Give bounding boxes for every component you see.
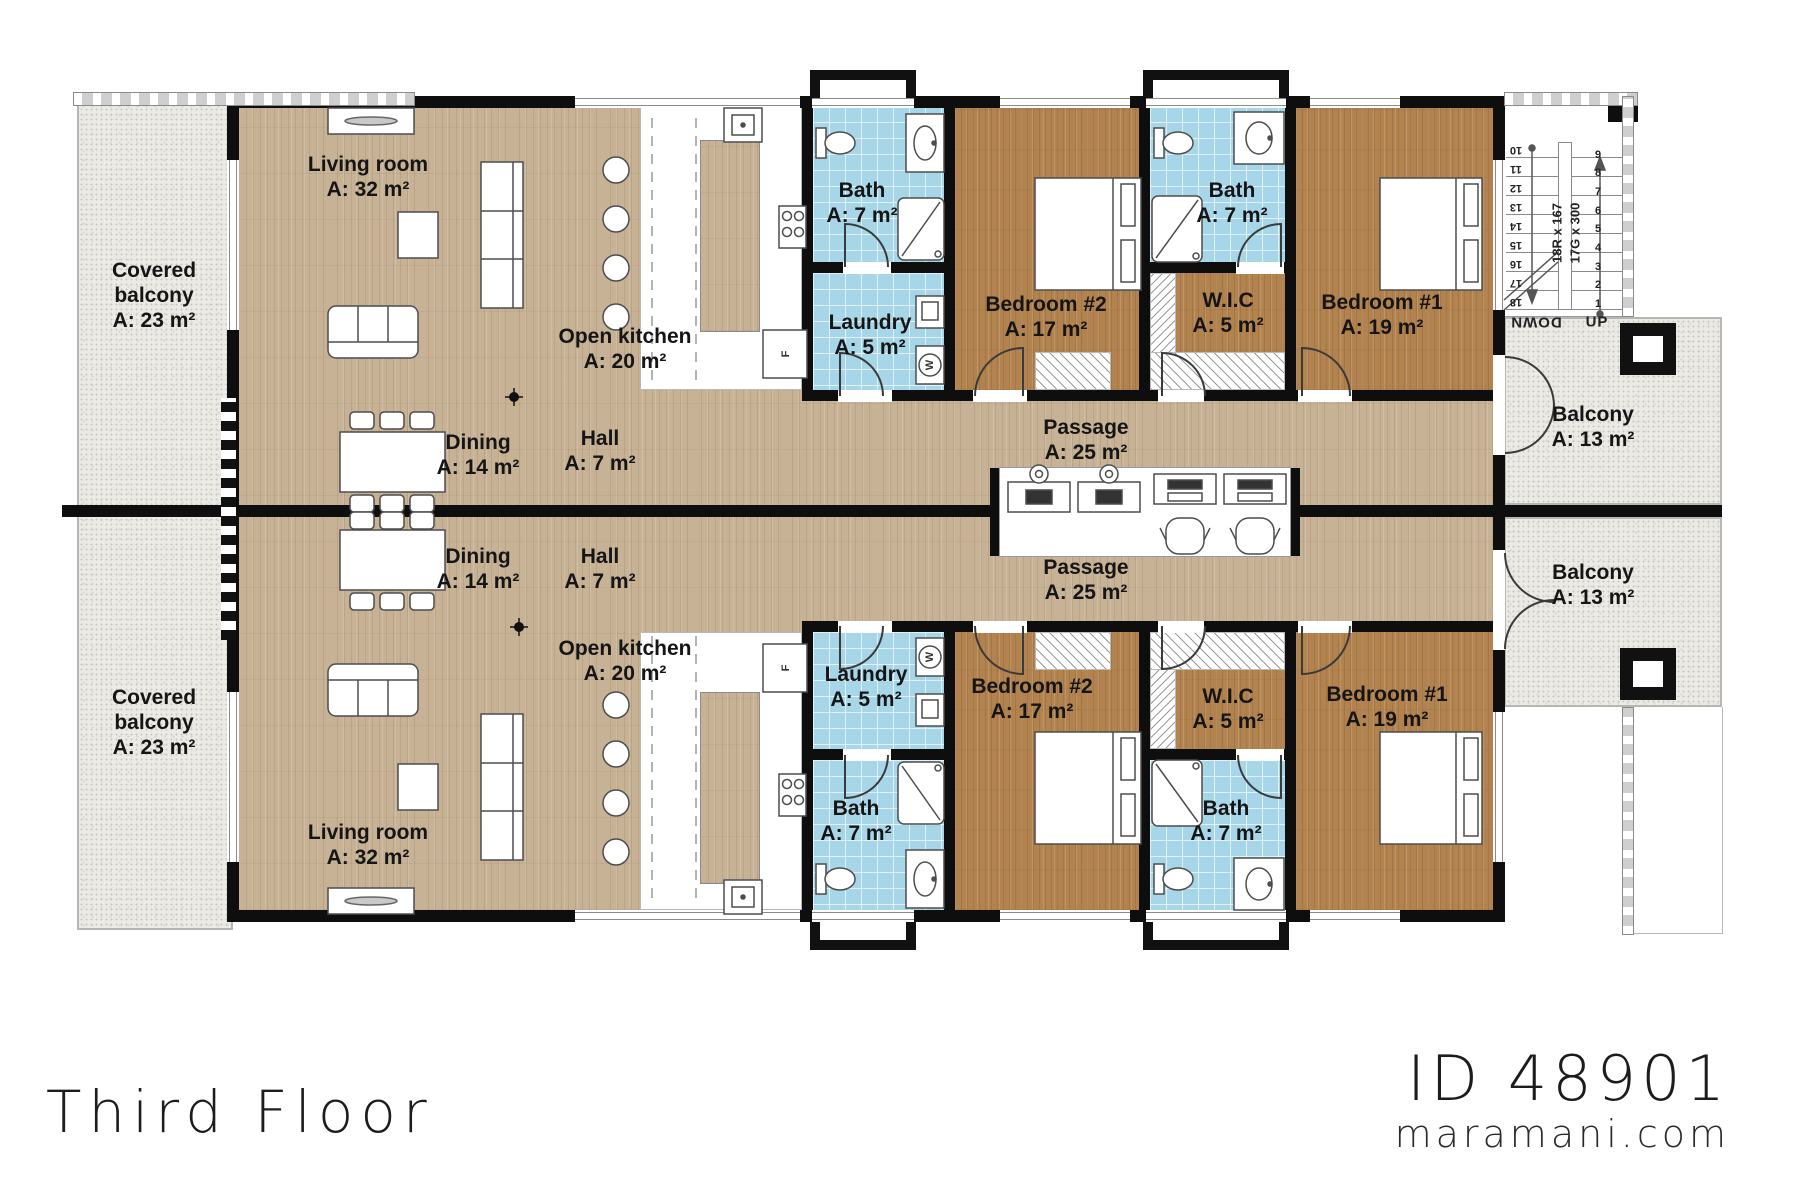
office-chair (1160, 518, 1210, 554)
bed (1380, 178, 1482, 290)
room-label-dining-bottom: DiningA: 14 m² (437, 545, 520, 595)
room-area: A: 5 m² (825, 688, 908, 713)
sofa (328, 664, 418, 716)
room-area: A: 5 m² (829, 336, 912, 361)
room-area: A: 19 m² (1326, 708, 1447, 733)
room-area: A: 13 m² (1552, 586, 1635, 611)
bed (1035, 178, 1141, 290)
room-area: A: 23 m² (95, 308, 213, 333)
washer-label: W (924, 360, 936, 370)
room-name: Covered balcony (95, 259, 213, 309)
room-area: A: 17 m² (985, 318, 1106, 343)
room-area: A: 7 m² (1190, 822, 1261, 847)
furniture-layer (0, 0, 1800, 1200)
fireplace (328, 888, 414, 914)
sink-vanity (906, 114, 944, 172)
room-name: Dining (437, 545, 520, 570)
room-name: Open kitchen (558, 637, 691, 662)
stair-step-number: 9 (1595, 149, 1601, 161)
room-label-bedroom1-top: Bedroom #1A: 19 m² (1321, 291, 1442, 341)
survey-marker (505, 388, 528, 636)
stair-step-number: 18 (1510, 296, 1522, 308)
room-area: A: 23 m² (95, 735, 213, 760)
room-name: Living room (308, 153, 428, 178)
dining-table (340, 512, 445, 610)
room-name: Hall (564, 427, 635, 452)
room-label-balcony-top: BalconyA: 13 m² (1552, 403, 1635, 453)
room-area: A: 17 m² (971, 700, 1092, 725)
room-label-bath1-bottom: BathA: 7 m² (820, 797, 891, 847)
bed (1035, 732, 1141, 844)
room-area: A: 7 m² (564, 452, 635, 477)
toilet (816, 128, 855, 158)
stair-going-dim: 17G x 300 (1566, 203, 1584, 264)
stove (779, 206, 806, 248)
stair-step-number: 10 (1510, 144, 1522, 156)
fridge-label: F (780, 351, 792, 358)
stair-step-number: 2 (1595, 279, 1601, 291)
room-area: A: 25 m² (1043, 441, 1128, 466)
room-label-living-room-bottom: Living roomA: 32 m² (308, 821, 428, 871)
room-label-hall-bottom: HallA: 7 m² (564, 545, 635, 595)
room-label-bath2-bottom: BathA: 7 m² (1190, 797, 1261, 847)
dining-table (340, 412, 445, 512)
room-label-covered-balcony-top: Covered balconyA: 23 m² (95, 259, 213, 333)
room-name: Passage (1043, 416, 1128, 441)
room-label-passage-top: PassageA: 25 m² (1043, 416, 1128, 466)
room-name: W.I.C (1192, 289, 1263, 314)
room-area: A: 14 m² (437, 456, 520, 481)
plan-id: ID 48901 (1407, 1042, 1730, 1115)
stair-step-number: 15 (1510, 239, 1522, 251)
room-label-bath2-top: BathA: 7 m² (1196, 179, 1267, 229)
stair-riser-dim: 18R x 167 (1548, 203, 1566, 264)
stair-step-number: 7 (1595, 186, 1601, 198)
room-name: Balcony (1552, 561, 1635, 586)
room-label-living-room-top: Living roomA: 32 m² (308, 153, 428, 203)
stair-dimensions: 18R x 16717G x 300 (1548, 203, 1583, 264)
room-area: A: 7 m² (826, 204, 897, 229)
room-label-laundry-bottom: LaundryA: 5 m² (825, 663, 908, 713)
room-name: Bath (1190, 797, 1261, 822)
room-area: A: 19 m² (1321, 316, 1442, 341)
desk (1224, 474, 1286, 504)
bar-stools (603, 692, 629, 865)
room-name: Laundry (825, 663, 908, 688)
room-name: Passage (1043, 556, 1128, 581)
stair-step-number: 11 (1510, 163, 1522, 175)
stair-step-number: 6 (1595, 205, 1601, 217)
room-name: Open kitchen (558, 325, 691, 350)
room-label-bath1-top: BathA: 7 m² (826, 179, 897, 229)
room-name: Bath (1196, 179, 1267, 204)
bookshelf (481, 162, 523, 308)
stair-step-number: 12 (1510, 182, 1522, 194)
stair-step-number: 17 (1510, 277, 1522, 289)
sink-vanity (1234, 858, 1284, 910)
room-area: A: 20 m² (558, 350, 691, 375)
kitchen-sink (724, 108, 762, 142)
room-label-laundry-top: LaundryA: 5 m² (829, 311, 912, 361)
toilet (1154, 864, 1193, 894)
room-area: A: 7 m² (564, 570, 635, 595)
room-area: A: 32 m² (308, 178, 428, 203)
office-chair (1230, 518, 1280, 554)
room-label-open-kitchen-bottom: Open kitchenA: 20 m² (558, 637, 691, 687)
room-name: Covered balcony (95, 686, 213, 736)
room-area: A: 32 m² (308, 846, 428, 871)
stair-step-number: 4 (1595, 242, 1601, 254)
room-label-hall-top: HallA: 7 m² (564, 427, 635, 477)
laundry-sink (916, 694, 944, 726)
washer-label: W (924, 652, 936, 662)
sofa (328, 306, 418, 358)
fridge-label: F (780, 665, 792, 672)
room-label-covered-balcony-bottom: Covered balconyA: 23 m² (95, 686, 213, 760)
bookshelf (481, 714, 523, 860)
room-name: Bath (826, 179, 897, 204)
room-area: A: 14 m² (437, 570, 520, 595)
room-area: A: 7 m² (1196, 204, 1267, 229)
stair-down-label: DOWN (1510, 314, 1562, 331)
stair-step-number: 16 (1510, 258, 1522, 270)
room-name: Bedroom #1 (1321, 291, 1442, 316)
shower (898, 198, 944, 260)
room-label-bedroom2-top: Bedroom #2A: 17 m² (985, 293, 1106, 343)
room-area: A: 13 m² (1552, 428, 1635, 453)
bar-stools (603, 157, 629, 330)
stair-up-label: UP (1586, 314, 1609, 331)
kitchen-sink (724, 880, 762, 914)
room-label-wic-top: W.I.CA: 5 m² (1192, 289, 1263, 339)
stair-step-number: 3 (1595, 261, 1601, 273)
room-area: A: 25 m² (1043, 581, 1128, 606)
room-label-passage-bottom: PassageA: 25 m² (1043, 556, 1128, 606)
room-label-wic-bottom: W.I.CA: 5 m² (1192, 685, 1263, 735)
coffee-table (398, 764, 438, 810)
sink-vanity (1234, 112, 1284, 164)
room-name: Hall (564, 545, 635, 570)
brand-website: maramani.com (1395, 1112, 1730, 1156)
toilet (1154, 128, 1193, 158)
room-label-open-kitchen-top: Open kitchenA: 20 m² (558, 325, 691, 375)
room-label-bedroom1-bottom: Bedroom #1A: 19 m² (1326, 683, 1447, 733)
stair-step-number: 1 (1595, 298, 1601, 310)
room-name: W.I.C (1192, 685, 1263, 710)
room-name: Dining (437, 431, 520, 456)
room-name: Laundry (829, 311, 912, 336)
laundry-sink (916, 296, 944, 328)
bed (1380, 732, 1482, 844)
page-title: Third Floor (46, 1078, 434, 1146)
room-area: A: 7 m² (820, 822, 891, 847)
stair-step-number: 5 (1595, 223, 1601, 235)
room-name: Bedroom #2 (971, 675, 1092, 700)
room-label-bedroom2-bottom: Bedroom #2A: 17 m² (971, 675, 1092, 725)
room-label-dining-top: DiningA: 14 m² (437, 431, 520, 481)
room-area: A: 20 m² (558, 662, 691, 687)
desk (1008, 465, 1070, 512)
fireplace (328, 108, 414, 134)
room-name: Bedroom #1 (1326, 683, 1447, 708)
stair-step-number: 14 (1510, 220, 1522, 232)
stair-step-number: 8 (1595, 167, 1601, 179)
stair-step-number: 13 (1510, 201, 1522, 213)
toilet (816, 864, 855, 894)
room-label-balcony-bottom: BalconyA: 13 m² (1552, 561, 1635, 611)
coffee-table (398, 212, 438, 258)
room-area: A: 5 m² (1192, 710, 1263, 735)
room-name: Balcony (1552, 403, 1635, 428)
room-area: A: 5 m² (1192, 314, 1263, 339)
shower (1152, 196, 1202, 262)
room-name: Bedroom #2 (985, 293, 1106, 318)
shower (898, 762, 944, 824)
stove (779, 774, 806, 816)
room-name: Living room (308, 821, 428, 846)
desk (1078, 465, 1140, 512)
sink-vanity (906, 850, 944, 908)
room-name: Bath (820, 797, 891, 822)
floor-plan-canvas: F W F W Covered balconyA: 23 m² Living r… (0, 0, 1800, 1200)
desk (1154, 474, 1216, 504)
